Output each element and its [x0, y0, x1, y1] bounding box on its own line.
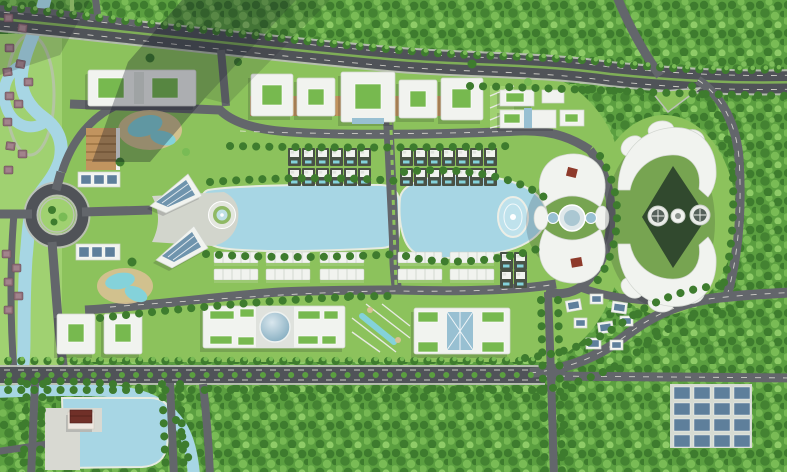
temple-pavilion	[66, 410, 94, 432]
temple-roof	[70, 410, 92, 423]
south-vertical-road-1	[31, 383, 35, 472]
mall-row	[248, 72, 483, 126]
solar-slab-north	[78, 172, 120, 187]
south-road-east	[545, 376, 787, 378]
roundabout-east-arm	[82, 210, 152, 212]
roundabout-north-arm	[56, 172, 61, 190]
crescent-towers	[605, 119, 716, 313]
diagonal-park	[352, 304, 410, 352]
roundabout-island	[40, 198, 74, 232]
west-edge-road	[11, 214, 14, 372]
roof-accent	[570, 257, 582, 268]
atrium-building	[411, 308, 510, 358]
dome-building	[200, 306, 345, 352]
solar-slab-south	[76, 244, 120, 260]
glass-dome	[260, 312, 290, 342]
masterplan-render: Lakeside eco-city master plan — aerial r…	[0, 0, 787, 472]
masterplan-canvas: Lakeside eco-city master plan — aerial r…	[0, 0, 787, 472]
south-vertical-road-2	[170, 383, 174, 472]
circular-fountain	[209, 202, 236, 229]
lake-fountain-island	[498, 197, 528, 237]
